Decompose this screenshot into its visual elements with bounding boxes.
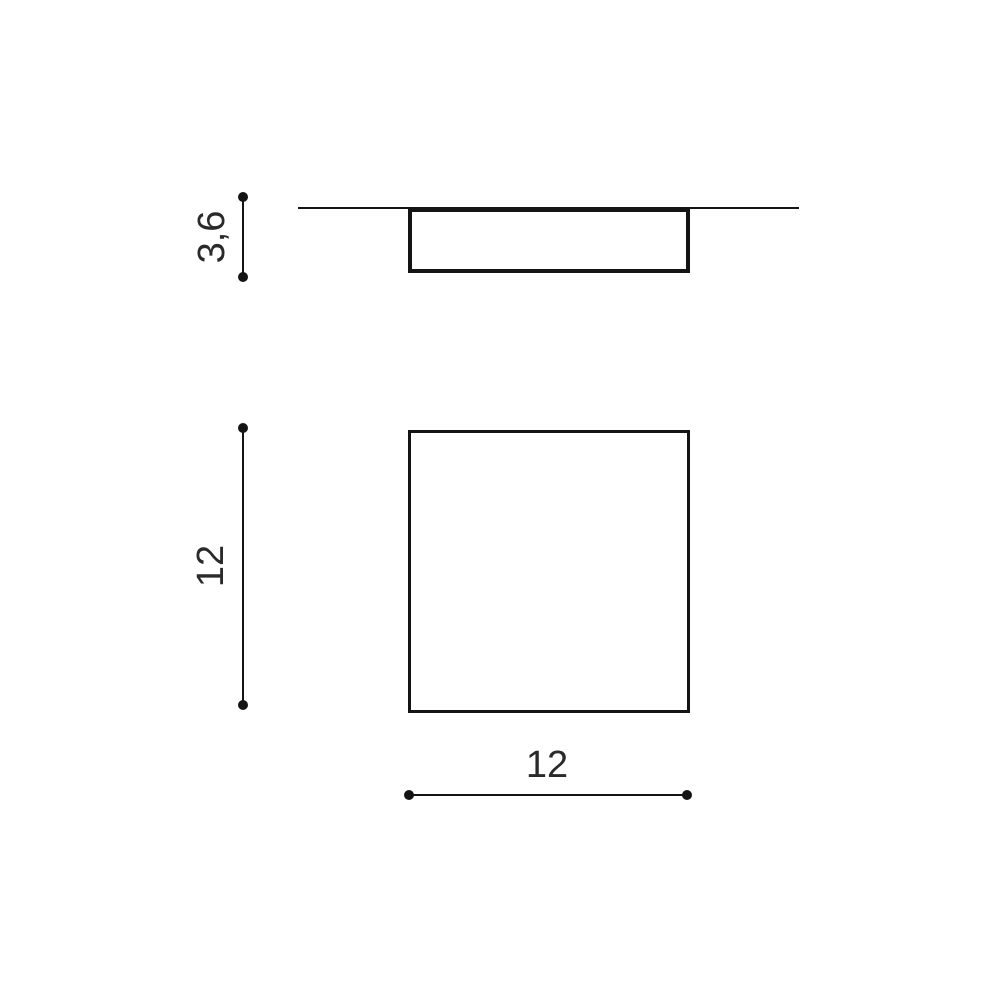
technical-drawing-canvas: 3,6 12 12 (0, 0, 992, 992)
depth-dimension-endpoint-dot-bottom (238, 272, 248, 282)
depth-dimension-label: 3,6 (193, 211, 231, 264)
width-dimension-line (409, 794, 687, 796)
width-dimension-endpoint-dot-right (682, 790, 692, 800)
plan-view-body (408, 430, 690, 713)
width-dimension-endpoint-dot-left (404, 790, 414, 800)
width-dimension-label: 12 (526, 746, 568, 784)
depth-dimension-line (242, 197, 244, 277)
height-dimension-line (242, 428, 244, 705)
height-dimension-label: 12 (192, 545, 230, 587)
side-view-body (408, 208, 690, 273)
height-dimension-endpoint-dot-top (238, 423, 248, 433)
height-dimension-endpoint-dot-bottom (238, 700, 248, 710)
depth-dimension-endpoint-dot-top (238, 192, 248, 202)
